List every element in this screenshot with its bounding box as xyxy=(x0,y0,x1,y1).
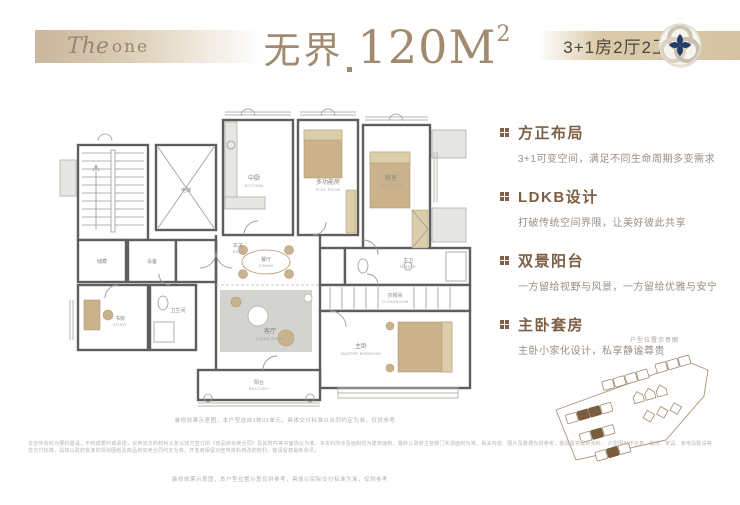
grid-square-icon xyxy=(500,256,509,265)
svg-text:KITCHEN: KITCHEN xyxy=(245,184,264,188)
room-label-store2: 设备 xyxy=(147,258,157,265)
feature-item-ldkb: LDKB设计 打破传统空间界限，让美好彼此共享 xyxy=(500,186,725,229)
page-title: 无界 120M2 xyxy=(255,18,520,76)
svg-text:HALL: HALL xyxy=(233,250,244,254)
svg-text:BALCONY: BALCONY xyxy=(249,387,269,391)
siteplan-label: 户型位置示意图 xyxy=(630,335,679,344)
unit-spec-label: 3+1房2厅2卫 xyxy=(563,33,670,58)
svg-text:DINING: DINING xyxy=(259,264,274,268)
svg-text:BED ROOM: BED ROOM xyxy=(380,184,403,188)
brand-badge: The one xyxy=(35,30,261,63)
room-label-flex: 多功能房 xyxy=(316,178,340,186)
feature-item-balcony: 双景阳台 一方留给视野与风景，一方留给优雅与安宁 xyxy=(500,250,725,293)
room-label-balcony: 阳台 xyxy=(254,379,264,386)
legal-line-1: 本宣传资料为要约邀请，不构成要约或承诺，买卖双方的权利义务以双方签订的《商品房买… xyxy=(28,441,606,447)
feature-item-layout: 方正布局 3+1可变空间，满足不同生命周期多变需求 xyxy=(500,122,725,165)
legal-line-center: 装修效果示意图，本户型位置示意仅供参考，具体以实际交付标准为准，仅供参考 xyxy=(80,475,480,483)
svg-text:LIVING ROOM: LIVING ROOM xyxy=(256,337,284,341)
room-label-kitchen: 中厨 xyxy=(248,174,260,182)
floor-plan: 电梯 中厨 KITCHEN 多功能房 FLEX ROOM 卧室 BED ROOM… xyxy=(58,90,482,420)
grid-square-icon xyxy=(500,192,509,201)
feature-title: 主卧套房 xyxy=(518,314,584,335)
feature-list: 方正布局 3+1可变空间，满足不同生命周期多变需求 LDKB设计 打破传统空间界… xyxy=(500,122,725,357)
svg-text:MASTER BEDROOM: MASTER BEDROOM xyxy=(341,352,381,356)
feature-desc: 打破传统空间界限，让美好彼此共享 xyxy=(518,214,725,229)
feature-title: 双景阳台 xyxy=(518,250,584,271)
spec-band: 3+1房2厅2卫 xyxy=(538,31,740,60)
room-label-cloak: 衣帽间 xyxy=(387,292,402,299)
grid-square-icon xyxy=(500,128,509,137)
room-label-living: 客厅 xyxy=(264,327,276,335)
room-label-elevator: 电梯 xyxy=(181,187,191,194)
legal-disclaimer: 本宣传资料为要约邀请，不构成要约或承诺，买卖双方的权利义务以双方签订的《商品房买… xyxy=(28,441,712,455)
room-label-study: 书房 xyxy=(115,315,125,322)
brand-logo-one: one xyxy=(112,37,149,57)
feature-title: LDKB设计 xyxy=(518,186,599,207)
svg-text:FLEX ROOM: FLEX ROOM xyxy=(316,188,341,192)
svg-text:STUDY: STUDY xyxy=(113,323,127,327)
room-label-hall: 玄关 xyxy=(233,242,243,249)
feature-desc: 一方留给视野与风景，一方留给优雅与安宁 xyxy=(518,278,725,293)
room-label-store1: 储藏 xyxy=(97,258,107,265)
room-label-dining: 餐厅 xyxy=(261,256,271,263)
feature-title: 方正布局 xyxy=(518,122,584,143)
title-area-sup: 2 xyxy=(496,22,511,47)
poster-page: The one 无界 120M2 3+1房2厅2卫 xyxy=(0,0,740,505)
svg-text:M.BATH: M.BATH xyxy=(400,265,416,269)
room-label-bedroom2: 卧室 xyxy=(385,174,397,182)
room-label-masterbath: 主卫 xyxy=(403,257,413,264)
grid-square-icon xyxy=(500,320,509,329)
title-area-number: 120M2 xyxy=(358,20,512,74)
title-dot-separator xyxy=(347,67,352,72)
knot-seal-icon xyxy=(655,20,705,70)
title-cn: 无界 xyxy=(264,20,344,74)
room-label-master: 主卧 xyxy=(355,342,367,350)
room-label-bath2: 卫生间 xyxy=(170,307,185,314)
brand-logo-the: The xyxy=(67,34,109,59)
feature-desc: 3+1可变空间，满足不同生命周期多变需求 xyxy=(518,150,725,165)
svg-text:CLOAKROOM: CLOAKROOM xyxy=(382,300,409,304)
plan-caption: 装修效果示意图，本户型选自1栋01单元，具体交付标准以合同约定为准，仅供参考 xyxy=(150,416,420,424)
